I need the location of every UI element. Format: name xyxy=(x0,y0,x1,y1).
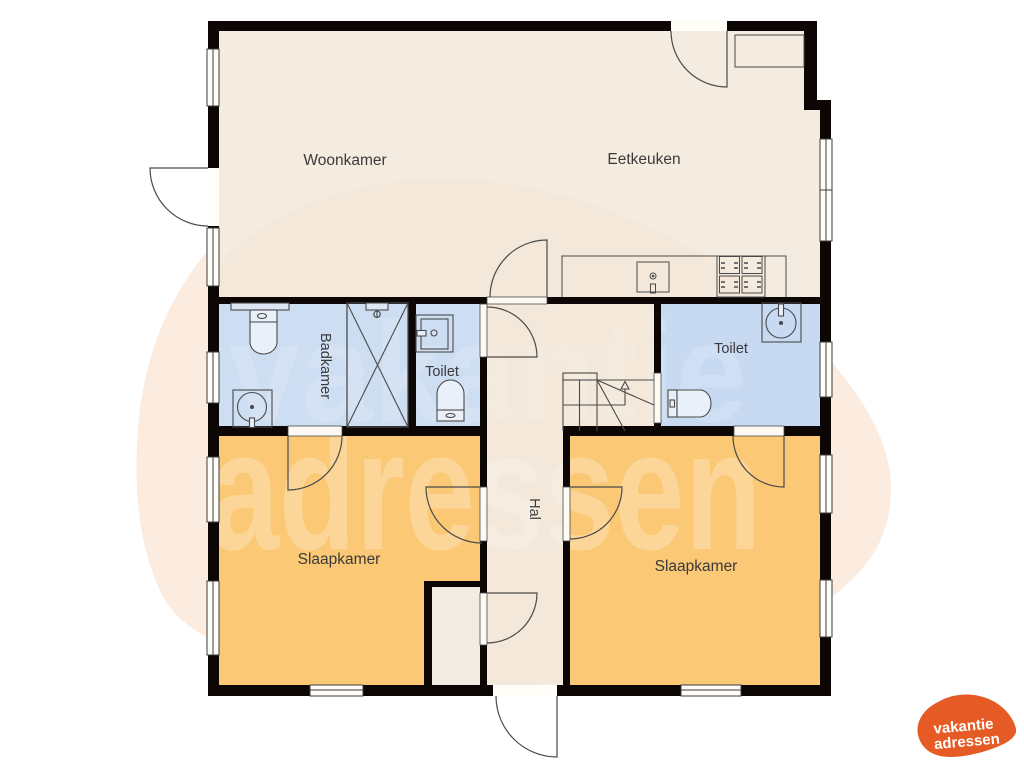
svg-text:Toilet: Toilet xyxy=(425,364,459,380)
svg-text:Woonkamer: Woonkamer xyxy=(303,152,386,169)
svg-text:Badkamer: Badkamer xyxy=(317,333,333,399)
svg-text:Eetkeuken: Eetkeuken xyxy=(607,151,680,168)
svg-text:Toilet: Toilet xyxy=(714,341,748,357)
svg-text:Slaapkamer: Slaapkamer xyxy=(298,551,381,568)
svg-text:Slaapkamer: Slaapkamer xyxy=(655,558,738,575)
svg-text:Hal: Hal xyxy=(526,498,542,520)
